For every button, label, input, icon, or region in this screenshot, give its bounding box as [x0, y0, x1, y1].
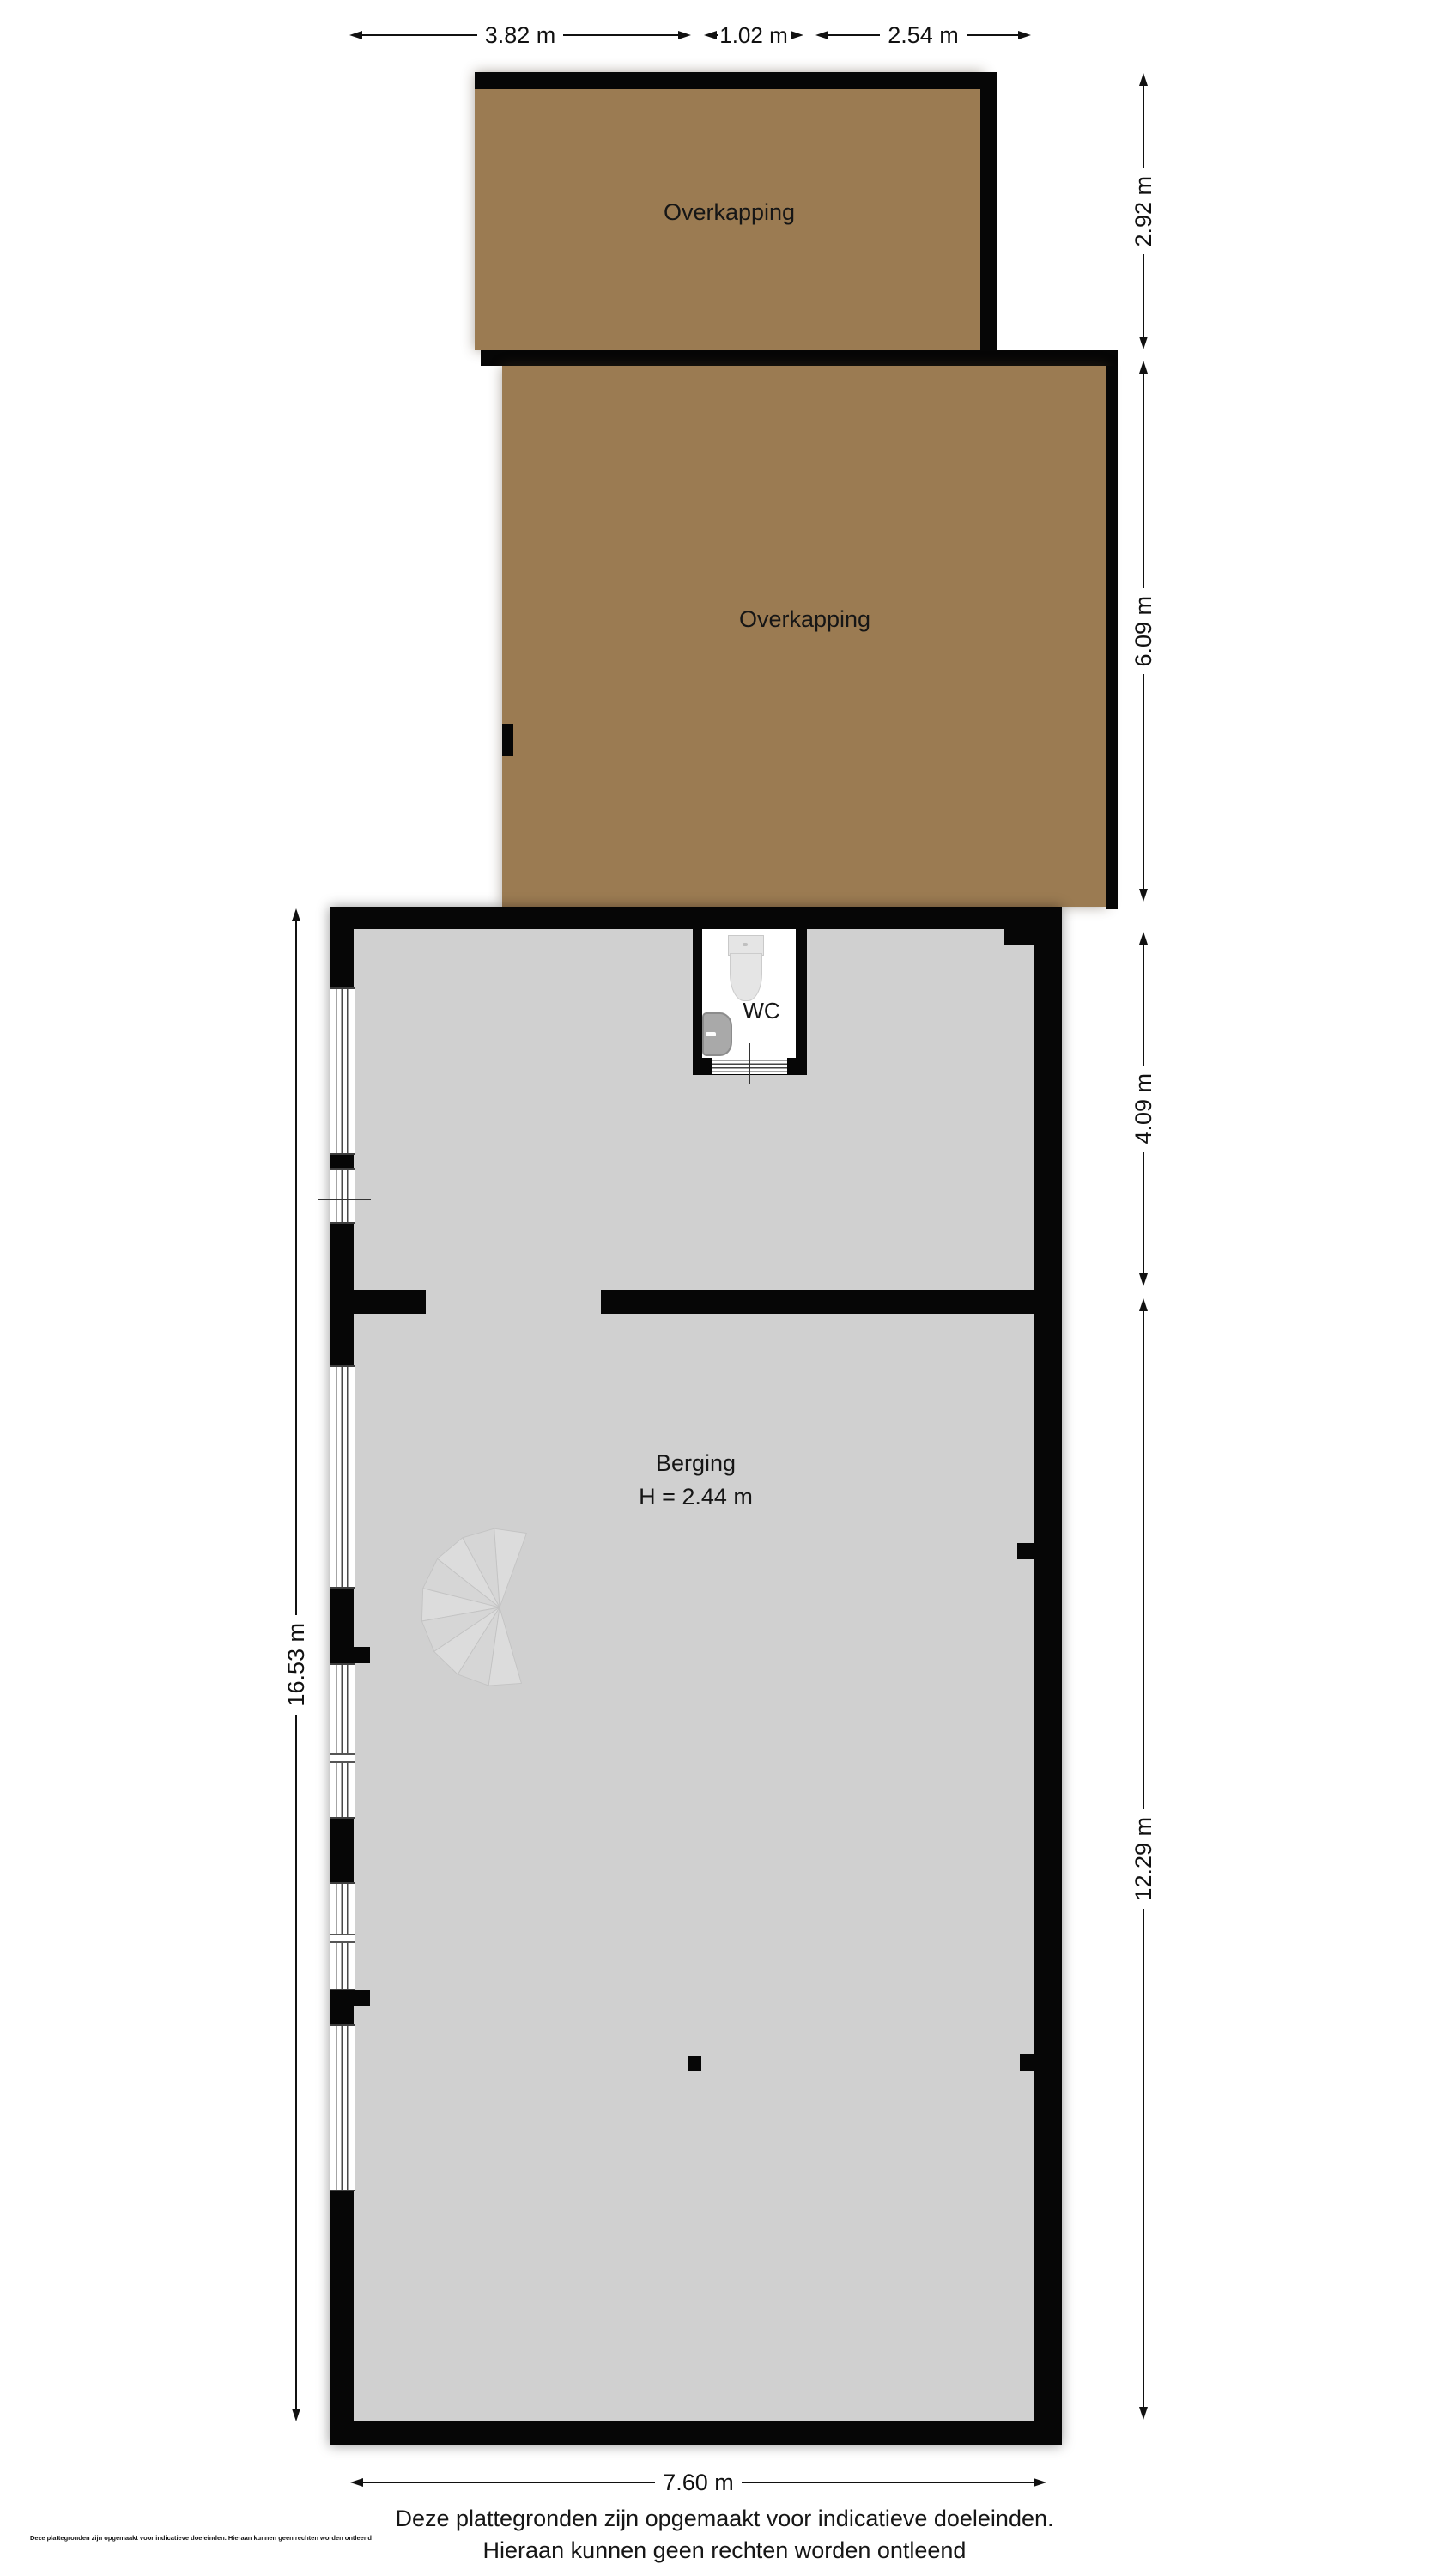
dim-line: [563, 34, 678, 36]
dim-top-2: 1.02 m: [704, 25, 803, 46]
overkapping-main-area: [502, 366, 1107, 907]
arrow-head: [350, 2478, 363, 2487]
column: [688, 2056, 701, 2071]
small-print-disclaimer: Deze plattegronden zijn opgemaakt voor i…: [30, 2534, 372, 2542]
dim-label: 2.92 m: [1132, 168, 1155, 255]
toilet-button-icon: [743, 943, 748, 946]
arrow-head: [1139, 337, 1148, 349]
dim-label: 2.54 m: [880, 24, 967, 47]
wc-door-leaf-line: [749, 1043, 750, 1084]
dim-right-3: 4.09 m: [1133, 932, 1154, 1286]
arrow-head: [1139, 361, 1148, 374]
arrow-head: [1139, 932, 1148, 945]
wc-walls: WC: [693, 929, 807, 1075]
window-tick-mark: [318, 1199, 371, 1200]
dim-bottom-1: 7.60 m: [350, 2472, 1046, 2493]
dim-right-1: 2.92 m: [1133, 73, 1154, 349]
dim-top-3: 2.54 m: [815, 25, 1031, 46]
room-height-note: H = 2.44 m: [330, 1483, 1062, 1512]
room-label-berging: Berging: [330, 1449, 1062, 1479]
window: [330, 987, 355, 1155]
arrow-head: [1034, 2478, 1046, 2487]
arrow-head: [815, 31, 828, 39]
room-label-overkapping-top: Overkapping: [475, 198, 984, 228]
arrow-head: [292, 908, 300, 921]
arrow-head: [349, 31, 362, 39]
dim-line: [362, 34, 477, 36]
dim-label: 6.09 m: [1132, 588, 1155, 675]
dim-line: [363, 2482, 655, 2483]
dim-label: 3.82 m: [477, 24, 564, 47]
arrow-head: [292, 2409, 300, 2421]
room-label-overkapping-main: Overkapping: [502, 605, 1107, 635]
window: [330, 2024, 355, 2191]
dim-label: 12.29 m: [1132, 1809, 1155, 1909]
dim-line: [742, 2482, 1034, 2483]
dim-line: [1143, 86, 1144, 168]
arrow-head: [1139, 1298, 1148, 1311]
dim-line: [1143, 254, 1144, 337]
wall-interior-west-segment: [330, 1290, 426, 1314]
toilet-bowl-icon: [730, 953, 762, 1001]
room-label-wc: WC: [727, 997, 796, 1025]
arrow-head: [678, 31, 691, 39]
wall-interior-east-segment: [601, 1290, 1062, 1314]
window: [330, 1663, 355, 1819]
dim-line: [295, 921, 297, 1615]
arrow-head: [1139, 73, 1148, 86]
wall-stub-west-1: [354, 1647, 370, 1663]
sink-tap-icon: [706, 1032, 716, 1036]
dim-line: [1143, 1909, 1144, 2407]
dim-left-1: 16.53 m: [286, 908, 306, 2421]
wall-stub-east-2: [1020, 2054, 1034, 2071]
dim-line: [1143, 945, 1144, 1066]
window: [330, 1168, 355, 1224]
wall-stub-west-2: [354, 1990, 370, 2006]
dim-right-2: 6.09 m: [1133, 361, 1154, 902]
dim-top-1: 3.82 m: [349, 25, 691, 46]
dim-line: [295, 1715, 297, 2409]
dim-right-4: 12.29 m: [1133, 1298, 1154, 2420]
dim-label: 4.09 m: [1132, 1066, 1155, 1152]
wall-overkapping-main-east: [1106, 366, 1118, 909]
dim-label: 7.60 m: [655, 2471, 742, 2494]
arrow-head: [704, 31, 717, 39]
dim-label: 16.53 m: [285, 1615, 308, 1715]
dim-line: [1143, 1311, 1144, 1809]
dim-line: [1143, 674, 1144, 889]
dim-label: 1.02 m: [717, 24, 791, 46]
arrow-head: [1139, 889, 1148, 902]
arrow-head: [1139, 2407, 1148, 2420]
spiral-staircase-icon: [403, 1516, 541, 1700]
wall-stub-overkapping-west: [502, 724, 513, 756]
window-divider: [330, 1934, 355, 1943]
dim-line: [967, 34, 1018, 36]
wall-stub-east-1: [1017, 1543, 1034, 1559]
wall-overkapping-top-north: [475, 72, 997, 89]
footer-note-line1: Deze plattegronden zijn opgemaakt voor i…: [0, 2506, 1449, 2532]
wall-notch-northeast: [1004, 929, 1034, 945]
floor-plan-canvas: Overkapping Overkapping: [0, 0, 1449, 2576]
dim-line: [828, 34, 880, 36]
dim-line: [1143, 1152, 1144, 1273]
dim-line: [1143, 374, 1144, 588]
arrow-head: [1018, 31, 1031, 39]
arrow-head: [1139, 1273, 1148, 1286]
wall-overkapping-divider: [481, 350, 1118, 366]
window-divider: [330, 1753, 355, 1763]
arrow-head: [791, 31, 803, 39]
